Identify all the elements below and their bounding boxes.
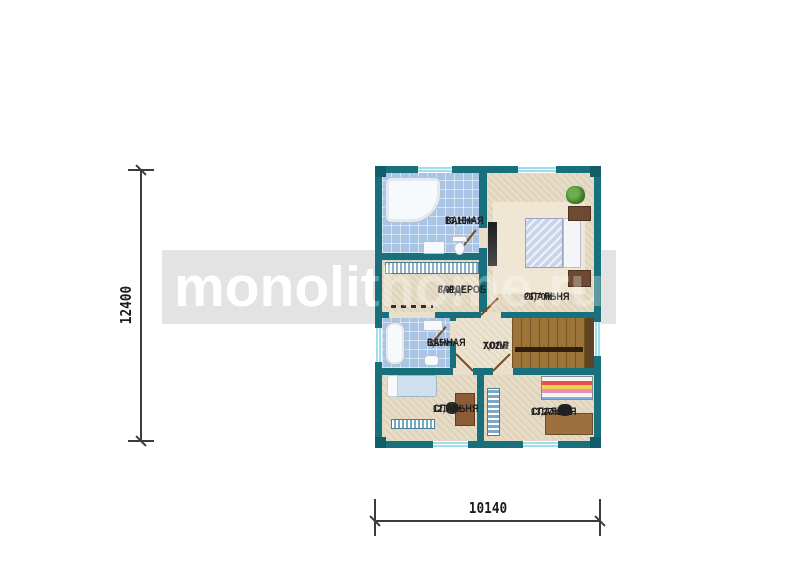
dimension-bottom-value: 10140: [469, 499, 507, 517]
bed-pillows: [563, 218, 581, 268]
dimension-bottom-ext-left: [374, 499, 376, 536]
wardrobe-rail: [385, 262, 479, 274]
sliding-door-wardrobe: [391, 305, 433, 308]
toilet-left: [424, 355, 439, 366]
shelf-br: [487, 388, 500, 436]
staircase: [512, 318, 594, 368]
staircase-rail: [515, 347, 583, 352]
label-bedroom-br-area: 13,27м²: [531, 407, 562, 418]
dimension-bottom-line: [375, 520, 601, 522]
label-bathroom-left-area: 6,55м²: [427, 338, 453, 349]
label-wardrobe-area: 8,91м²: [438, 285, 464, 296]
window-top-bedroom: [518, 166, 556, 173]
bathtub-left: [385, 322, 405, 365]
wall-corner: [590, 166, 601, 177]
bed-bl-pillow: [387, 375, 398, 397]
floor-plan: ВАННАЯ 13,16м² ГАРДЕРОБ 8,91м² СПАЛЬНЯ 2…: [375, 166, 601, 448]
sink-top: [423, 241, 445, 254]
wall-corner: [590, 437, 601, 448]
window-top-bathroom: [418, 166, 452, 173]
bed-blanket: [525, 218, 563, 268]
wardrobe-br: [541, 376, 593, 400]
dimension-bottom-ext-right: [599, 499, 601, 536]
toilet-top: [454, 242, 465, 255]
label-bathroom-top-area: 13,16м²: [445, 216, 476, 227]
nightstand-bottom: [568, 270, 591, 287]
dimension-left-value: 12400: [117, 286, 135, 324]
window-left-bathroom: [375, 328, 382, 362]
wall-corner: [375, 166, 386, 177]
door-opening-wardrobe: [389, 312, 435, 318]
label-bedroom-right-area: 26,70м²: [524, 292, 555, 303]
window-bottom-bedroom-left: [433, 441, 468, 448]
sink-left: [423, 320, 443, 331]
label-hall-area: 7,02м²: [483, 341, 509, 352]
door-opening-bathroom-top: [479, 228, 487, 248]
window-right-stairs: [594, 322, 601, 356]
radiator-bl: [391, 419, 435, 429]
label-bedroom-bl-area: 12,74м²: [433, 404, 464, 415]
wall-corner: [375, 437, 386, 448]
dimension-left-line: [140, 170, 142, 441]
staircase-landing: [585, 318, 594, 368]
tv-panel: [488, 222, 497, 266]
window-bottom-bedroom-right: [523, 441, 558, 448]
plant: [566, 186, 585, 204]
nightstand-top: [568, 206, 591, 221]
